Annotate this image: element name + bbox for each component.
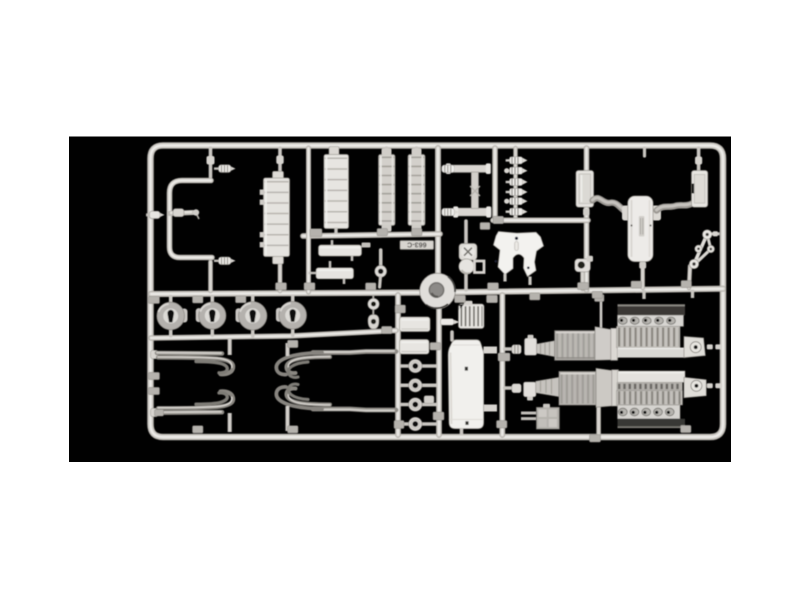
svg-text:663-C: 663-C [407, 241, 427, 250]
